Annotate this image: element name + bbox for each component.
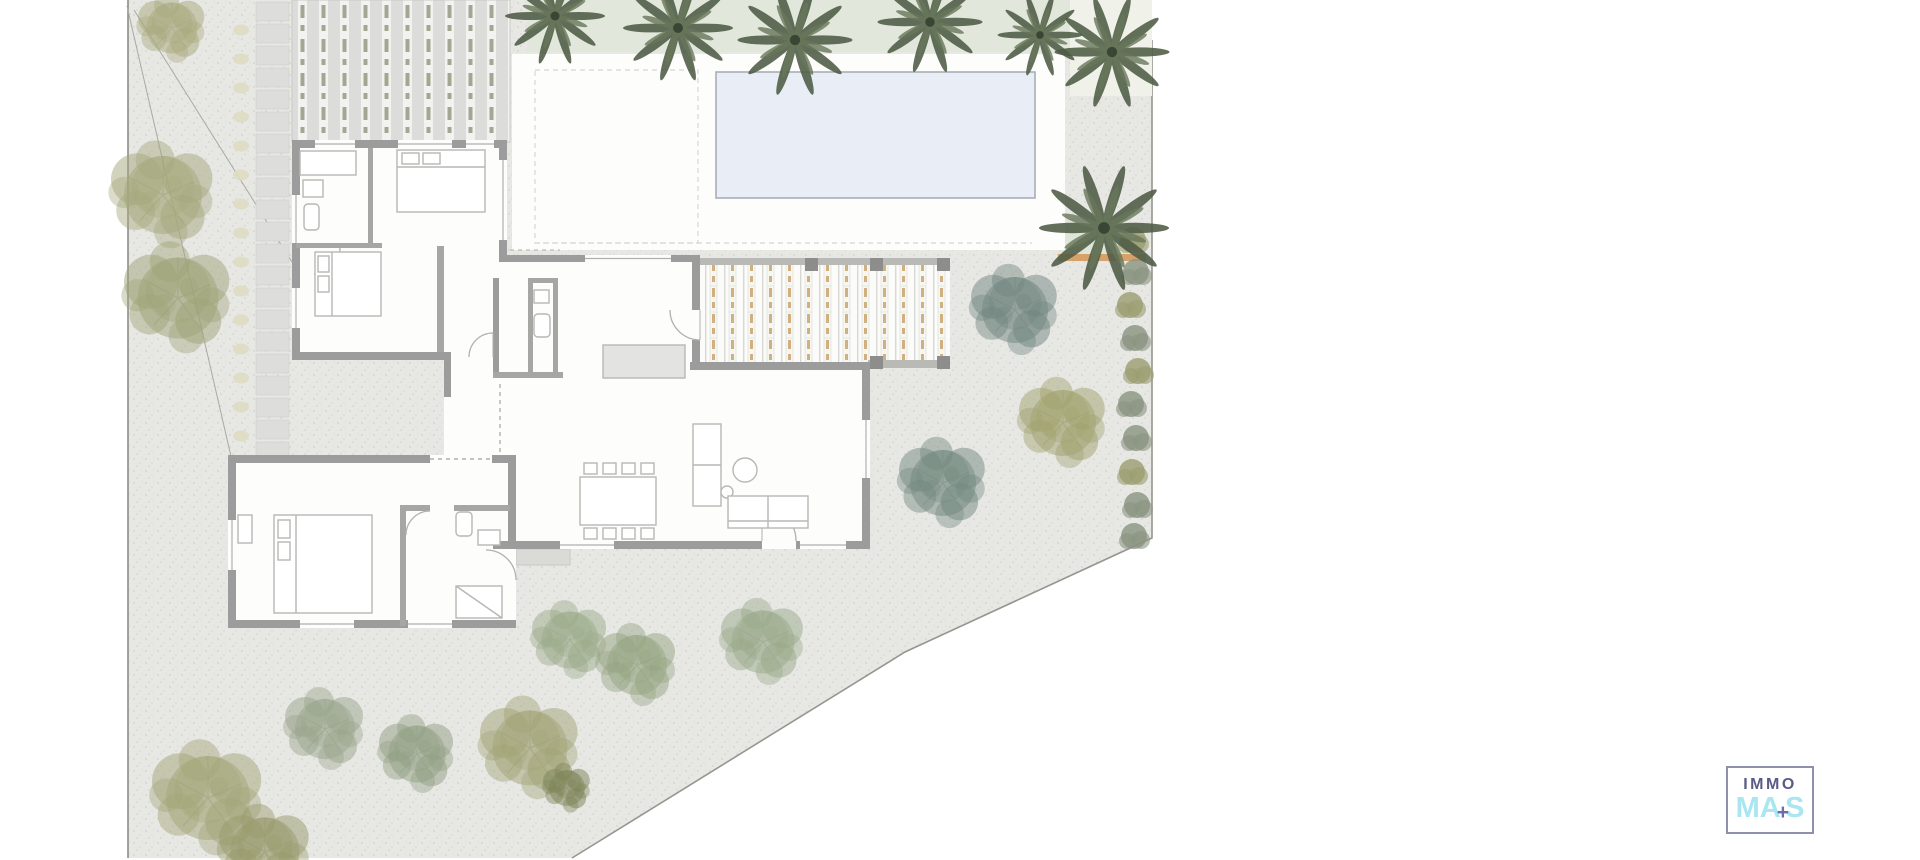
driveway-slab <box>256 310 289 329</box>
driveway-slab <box>256 398 289 417</box>
driveway-slab <box>256 332 289 351</box>
stepping-stone <box>233 83 249 94</box>
site-plan <box>0 0 1920 860</box>
stepping-stone <box>233 199 249 210</box>
logo-text-immo: IMMO <box>1743 777 1797 793</box>
driveway-slab <box>256 178 289 197</box>
pergola-northwest <box>292 0 510 142</box>
logo-text-mas: MA + S <box>1736 794 1805 823</box>
stepping-stone <box>233 344 249 355</box>
stepping-stone <box>233 228 249 239</box>
stepping-stone <box>233 54 249 65</box>
stepping-stone <box>233 315 249 326</box>
driveway-slab <box>256 244 289 263</box>
stepping-stone <box>233 373 249 384</box>
pool-terrace <box>512 54 1065 250</box>
kitchen-island <box>603 345 685 378</box>
driveway-slab <box>256 112 289 131</box>
stepping-stone <box>233 286 249 297</box>
stepping-stone <box>233 402 249 413</box>
stepping-stone <box>233 112 249 123</box>
driveway-slab <box>256 46 289 65</box>
driveway-slab <box>256 68 289 87</box>
driveway-slab <box>256 376 289 395</box>
driveway-slab <box>256 288 289 307</box>
swimming-pool <box>716 72 1035 198</box>
stepping-stone <box>233 257 249 268</box>
pergola-southeast <box>698 258 950 369</box>
driveway-slab <box>256 266 289 285</box>
bedroom2-bed <box>315 252 381 316</box>
driveway-slab <box>256 420 289 439</box>
driveway-slab <box>256 354 289 373</box>
stepping-stone <box>233 431 249 442</box>
driveway-slab <box>256 222 289 241</box>
garden-tree <box>108 140 212 248</box>
logo-plus-icon: + <box>1777 802 1789 823</box>
immomas-logo: IMMO MA + S <box>1726 766 1814 834</box>
driveway-slab <box>256 134 289 153</box>
driveway-slab <box>256 156 289 175</box>
driveway-slab <box>256 2 289 21</box>
driveway-slab <box>256 90 289 109</box>
stepping-stone <box>233 170 249 181</box>
terrace-step <box>516 549 570 565</box>
driveway-slab <box>256 24 289 43</box>
bedroom1-bed <box>397 150 485 212</box>
stepping-stone <box>233 25 249 36</box>
driveway-slab <box>256 200 289 219</box>
stepping-stone <box>233 141 249 152</box>
site-plan-page: IMMO MA + S <box>0 0 1920 860</box>
logo-text-ma: MA <box>1736 794 1781 823</box>
